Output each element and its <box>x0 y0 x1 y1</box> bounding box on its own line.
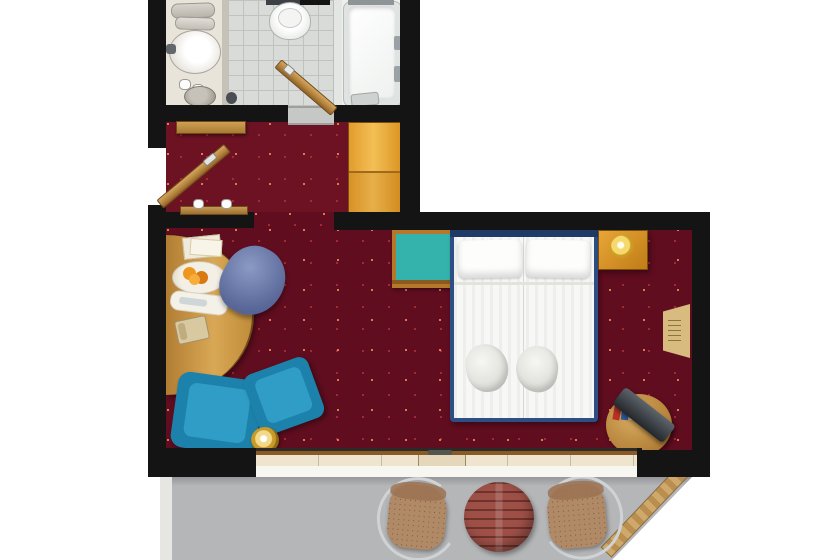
papers <box>189 238 222 257</box>
balcony <box>160 477 700 560</box>
rolled-towel <box>175 16 215 30</box>
wall-room-bottom-right <box>638 450 692 477</box>
vanity-divider-wall <box>222 0 228 107</box>
window-jamb <box>637 448 642 477</box>
rack-lines <box>668 320 681 344</box>
phone-keypad <box>189 321 204 336</box>
floor-plan <box>0 0 820 560</box>
headboard <box>450 230 598 237</box>
balcony-table <box>464 482 534 552</box>
waste-bin <box>184 86 216 107</box>
window-front <box>256 448 642 477</box>
wall-room-right <box>692 212 710 477</box>
bottle <box>179 297 208 307</box>
balcony-left-edge <box>160 477 172 560</box>
faucet <box>166 44 176 54</box>
pillow <box>526 239 591 278</box>
window-outer-ledge <box>256 466 642 477</box>
washbasin <box>169 30 221 74</box>
balcony-door <box>418 455 466 466</box>
bath-faucet-bar <box>348 0 394 5</box>
slipper <box>193 199 204 209</box>
armchair-cushion <box>253 365 314 425</box>
pillow <box>458 239 523 278</box>
bathroom-glass <box>179 79 189 88</box>
wall-bath-right <box>400 0 420 122</box>
tub-partition-wall <box>333 0 342 107</box>
sheet-fold <box>454 282 594 285</box>
wall-left-lower <box>148 205 166 477</box>
rattan-chair <box>377 477 458 560</box>
double-bed <box>450 230 598 422</box>
armchair-cushion <box>183 382 252 444</box>
wall-left-upper <box>148 0 166 148</box>
window-jamb <box>251 448 256 477</box>
wardrobe <box>348 122 404 214</box>
mattress-split <box>523 237 524 418</box>
toilet-brush <box>226 92 237 104</box>
console-shelf <box>176 121 246 134</box>
toilet-bowl <box>278 8 302 28</box>
balcony-door-handle <box>428 450 452 455</box>
wall-magazine-rack <box>660 304 690 358</box>
rattan-chair <box>537 477 618 559</box>
fruit <box>189 274 200 285</box>
wall-room-top <box>334 212 710 230</box>
bathtub-basin <box>348 6 395 98</box>
phone-handset <box>177 322 187 340</box>
wall-bath-bottom-left <box>148 105 288 122</box>
wall-bath-bottom-right <box>334 105 400 122</box>
wall-top-cut <box>300 0 330 5</box>
wall-room-bottom-left <box>148 448 258 477</box>
wardrobe-lower <box>349 173 403 213</box>
wall-hall-right <box>400 122 420 212</box>
slipper <box>221 199 232 209</box>
luggage-rack-rail <box>392 280 450 284</box>
luggage-bench <box>180 206 248 215</box>
